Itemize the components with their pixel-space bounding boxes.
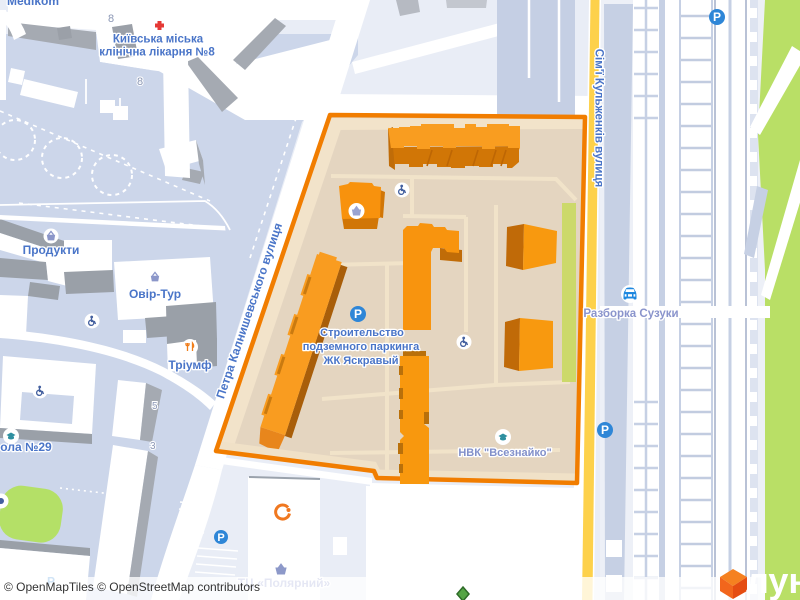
svg-text:8: 8 (137, 76, 143, 88)
svg-text:Овір-Тур: Овір-Тур (129, 287, 181, 301)
svg-text:8: 8 (108, 13, 114, 25)
svg-text:Тріумф: Тріумф (168, 358, 212, 372)
svg-text:Продукти: Продукти (23, 243, 80, 257)
svg-text:ЖК Яскравый: ЖК Яскравый (323, 355, 399, 367)
svg-text:подземного паркинга: подземного паркинга (303, 341, 420, 353)
svg-text:P: P (713, 10, 721, 24)
svg-text:Київська міська: Київська міська (113, 34, 204, 46)
svg-text:лун: лун (746, 560, 800, 600)
svg-text:5: 5 (152, 401, 158, 412)
svg-text:клінічна лікарня №8: клінічна лікарня №8 (99, 47, 215, 59)
svg-text:Разборка Сузуки: Разборка Сузуки (583, 308, 678, 320)
svg-text:Строительство: Строительство (320, 327, 404, 339)
svg-text:ола №29: ола №29 (0, 440, 52, 454)
svg-text:© OpenMapTiles © OpenStreetMap: © OpenMapTiles © OpenStreetMap contribut… (4, 580, 260, 594)
svg-text:3: 3 (150, 441, 156, 452)
svg-text:Сім'ї Кульженків вулиця: Сім'ї Кульженків вулиця (593, 49, 605, 188)
svg-text:Medikom: Medikom (7, 0, 59, 8)
svg-text:P: P (354, 307, 362, 321)
svg-text:P: P (217, 532, 224, 544)
svg-text:НВК "Всезнайко": НВК "Всезнайко" (458, 447, 551, 459)
svg-text:P: P (601, 423, 609, 437)
